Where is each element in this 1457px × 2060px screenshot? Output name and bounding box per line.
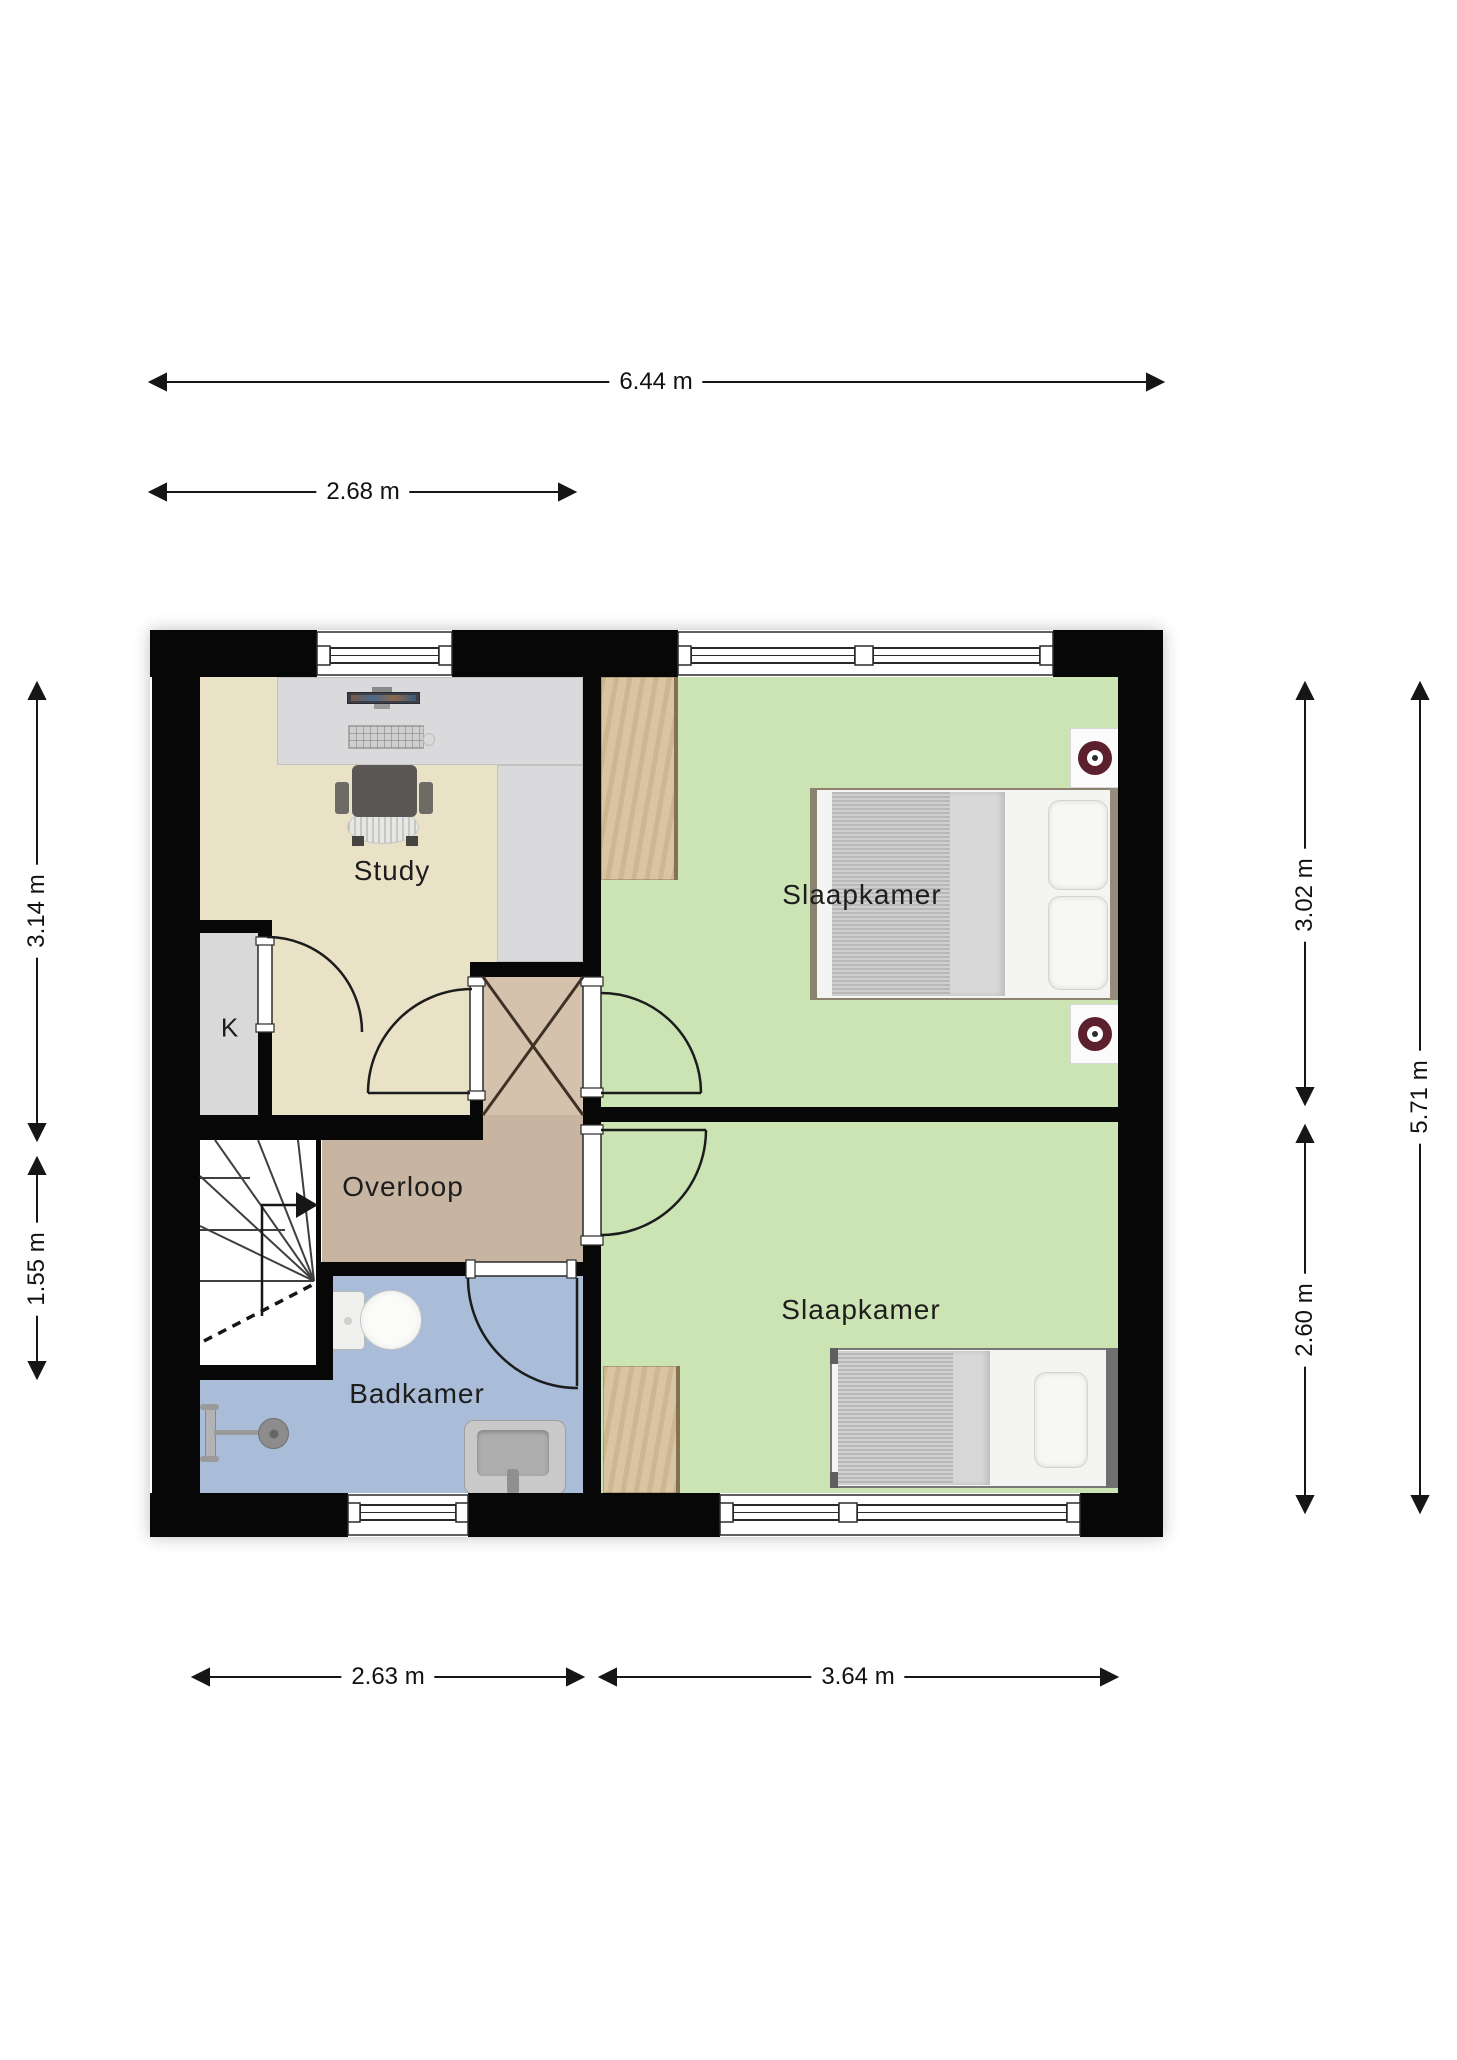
office-chair-foot-right: [406, 836, 418, 846]
sink: [464, 1420, 566, 1495]
shower-head: [258, 1418, 289, 1449]
office-chair-armrest-left: [335, 782, 349, 814]
bed-post-bottom: [830, 1472, 838, 1488]
dim-height-stairs: 1.55 m: [22, 1222, 52, 1315]
void-box: [483, 977, 583, 1115]
lamp-icon: [1078, 1017, 1112, 1051]
wall-stair-right: [316, 1140, 321, 1262]
dim-width-total: 6.44 m: [609, 367, 702, 397]
pillow-top: [1048, 800, 1108, 890]
wall-top-mid: [452, 630, 678, 677]
dim-height-study: 3.14 m: [22, 864, 52, 957]
lamp-icon: [1078, 741, 1112, 775]
bed-blanket-fold: [950, 792, 1005, 996]
room-label-bedroom-bottom: Slaapkamer: [781, 1294, 940, 1326]
wardrobe-bottom: [603, 1366, 680, 1493]
room-label-study: Study: [354, 855, 431, 887]
mouse: [423, 733, 435, 746]
bed-blanket: [838, 1351, 953, 1485]
office-chair-back: [352, 765, 417, 817]
nightstand-bottom: [1070, 1004, 1120, 1064]
wall-stair-bottom: [200, 1365, 333, 1380]
wall-study-void: [470, 962, 483, 1140]
dim-height-total: 5.71 m: [1405, 1050, 1435, 1143]
wall-right: [1118, 630, 1163, 1537]
toilet-bowl: [360, 1290, 422, 1350]
bed-blanket-fold: [953, 1351, 990, 1485]
wall-void-top: [470, 962, 601, 977]
bed-headboard: [1106, 1348, 1118, 1488]
dim-height-bedroom-bottom: 2.60 m: [1290, 1273, 1320, 1366]
dim-width-left-rooms: 2.68 m: [316, 477, 409, 507]
room-label-bedroom-top: Slaapkamer: [782, 879, 941, 911]
desk-side-return: [497, 765, 583, 962]
wall-landing-bathroom: [322, 1262, 583, 1276]
wall-left: [152, 630, 200, 1537]
floorplan-page: Study K Overloop Badkamer Slaapkamer Sla…: [0, 0, 1457, 2060]
shower-rail-knob-bottom: [200, 1456, 219, 1462]
wall-closet-right: [258, 920, 272, 1140]
desk-top: [277, 677, 583, 765]
wall-study-south: [200, 1115, 483, 1140]
wall-bottom-left: [150, 1493, 348, 1537]
monitor-screen: [351, 695, 416, 701]
pillow: [1034, 1372, 1088, 1468]
nightstand-top: [1070, 728, 1120, 788]
room-label-bathroom: Badkamer: [349, 1378, 485, 1410]
wall-between-bedrooms: [601, 1107, 1118, 1122]
wall-bottom-right: [1080, 1493, 1163, 1537]
wardrobe-top: [601, 677, 678, 880]
room-label-landing: Overloop: [342, 1171, 464, 1203]
stairwell-floor: [200, 1140, 316, 1365]
shower-rail-knob-top: [200, 1404, 219, 1410]
dim-height-bedroom-top: 3.02 m: [1290, 848, 1320, 941]
office-chair-armrest-right: [419, 782, 433, 814]
monitor-base: [374, 704, 390, 709]
sink-faucet: [507, 1469, 519, 1494]
bed-post-top: [830, 1348, 838, 1364]
keyboard: [348, 725, 424, 749]
wall-stair-corner: [316, 1262, 333, 1380]
single-bed: [830, 1348, 1118, 1488]
dim-width-bathroom: 2.63 m: [341, 1662, 434, 1692]
room-label-closet: K: [221, 1013, 239, 1044]
office-chair-foot-left: [352, 836, 364, 846]
pillow-bottom: [1048, 896, 1108, 990]
monitor: [347, 692, 420, 704]
dim-width-bedroom-bottom: 3.64 m: [811, 1662, 904, 1692]
wall-bottom-mid: [468, 1493, 720, 1537]
wall-vertical-main: [583, 677, 601, 1493]
shower-arm: [214, 1430, 264, 1435]
